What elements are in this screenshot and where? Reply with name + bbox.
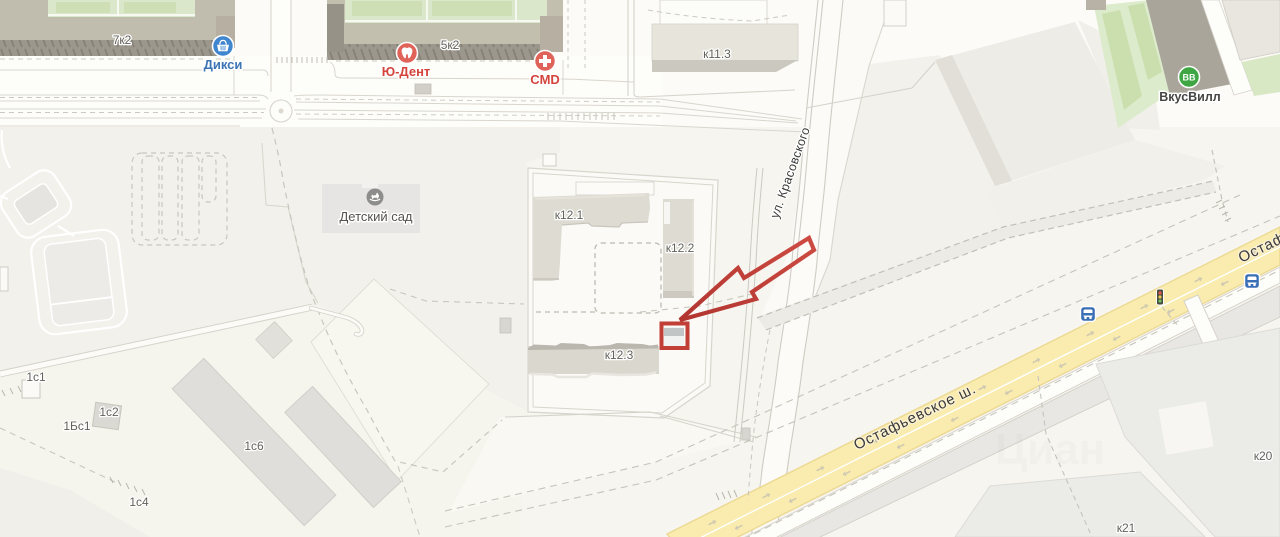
- svg-text:Ю-Дент: Ю-Дент: [382, 64, 431, 79]
- svg-text:к11.3: к11.3: [703, 47, 731, 61]
- svg-text:CMD: CMD: [530, 72, 560, 87]
- svg-text:1с4: 1с4: [129, 495, 149, 509]
- svg-text:Дикси: Дикси: [204, 57, 243, 72]
- svg-text:Детский сад: Детский сад: [339, 209, 412, 224]
- svg-text:к12.1: к12.1: [555, 208, 584, 222]
- svg-text:1Бс1: 1Бс1: [63, 419, 91, 433]
- svg-text:к12.3: к12.3: [605, 348, 634, 362]
- svg-text:ВкусВилл: ВкусВилл: [1159, 90, 1221, 104]
- svg-text:7к2: 7к2: [113, 33, 132, 47]
- svg-text:к12.2: к12.2: [666, 241, 695, 255]
- svg-text:1с2: 1с2: [99, 405, 119, 419]
- svg-text:к20: к20: [1254, 449, 1273, 463]
- svg-text:Циан: Циан: [995, 425, 1105, 474]
- svg-text:1с6: 1с6: [244, 439, 264, 453]
- svg-text:1с1: 1с1: [26, 370, 46, 384]
- svg-text:5к2: 5к2: [441, 38, 460, 52]
- svg-text:ВВ: ВВ: [1183, 73, 1196, 83]
- svg-text:к21: к21: [1117, 521, 1136, 535]
